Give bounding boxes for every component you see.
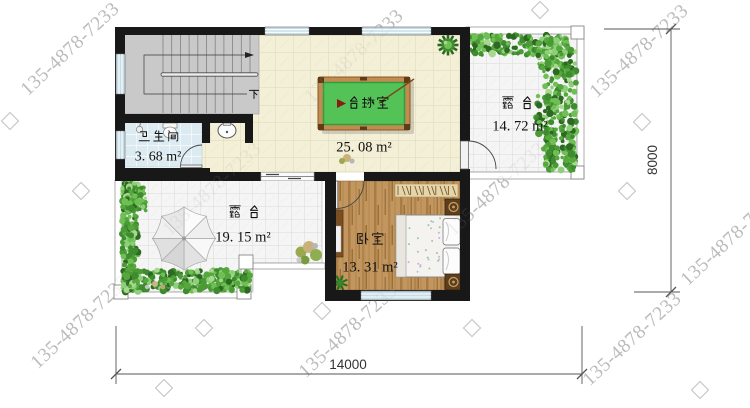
svg-text:25. 08 m²: 25. 08 m²	[336, 140, 392, 156]
svg-text:3. 68 m²: 3. 68 m²	[135, 150, 182, 165]
svg-text:19. 15 m²: 19. 15 m²	[215, 230, 271, 246]
svg-text:14000: 14000	[329, 357, 367, 372]
svg-text:13. 31 m²: 13. 31 m²	[342, 260, 398, 276]
svg-text:14. 72 m²: 14. 72 m²	[492, 119, 548, 135]
svg-text:8000: 8000	[645, 145, 660, 175]
